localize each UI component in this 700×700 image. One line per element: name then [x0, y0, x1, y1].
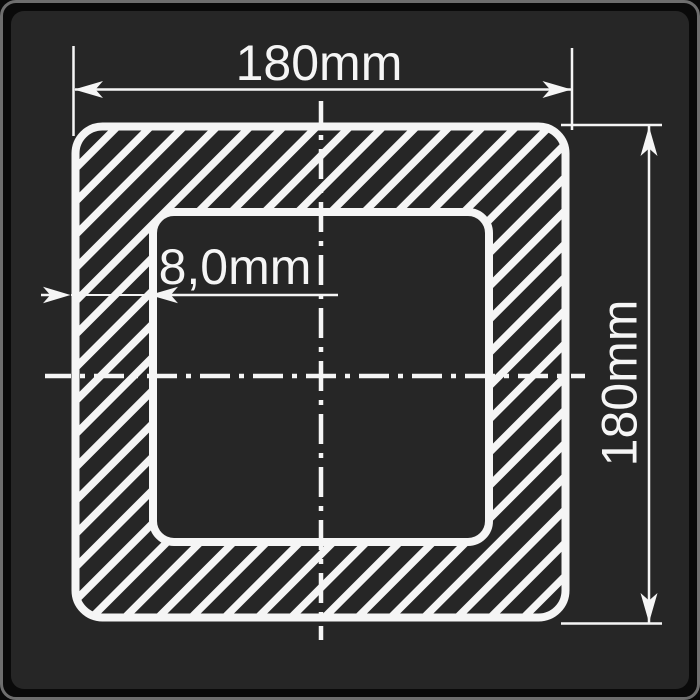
thickness-dimension-label: 8,0mm	[159, 239, 312, 295]
width-dimension-label: 180mm	[236, 35, 403, 91]
square-tube-cross-section-drawing: 180mm 180mm 8,0mm	[3, 3, 700, 700]
height-dimension-label: 180mm	[592, 300, 648, 467]
widget-frame: 180mm 180mm 8,0mm	[0, 0, 700, 700]
